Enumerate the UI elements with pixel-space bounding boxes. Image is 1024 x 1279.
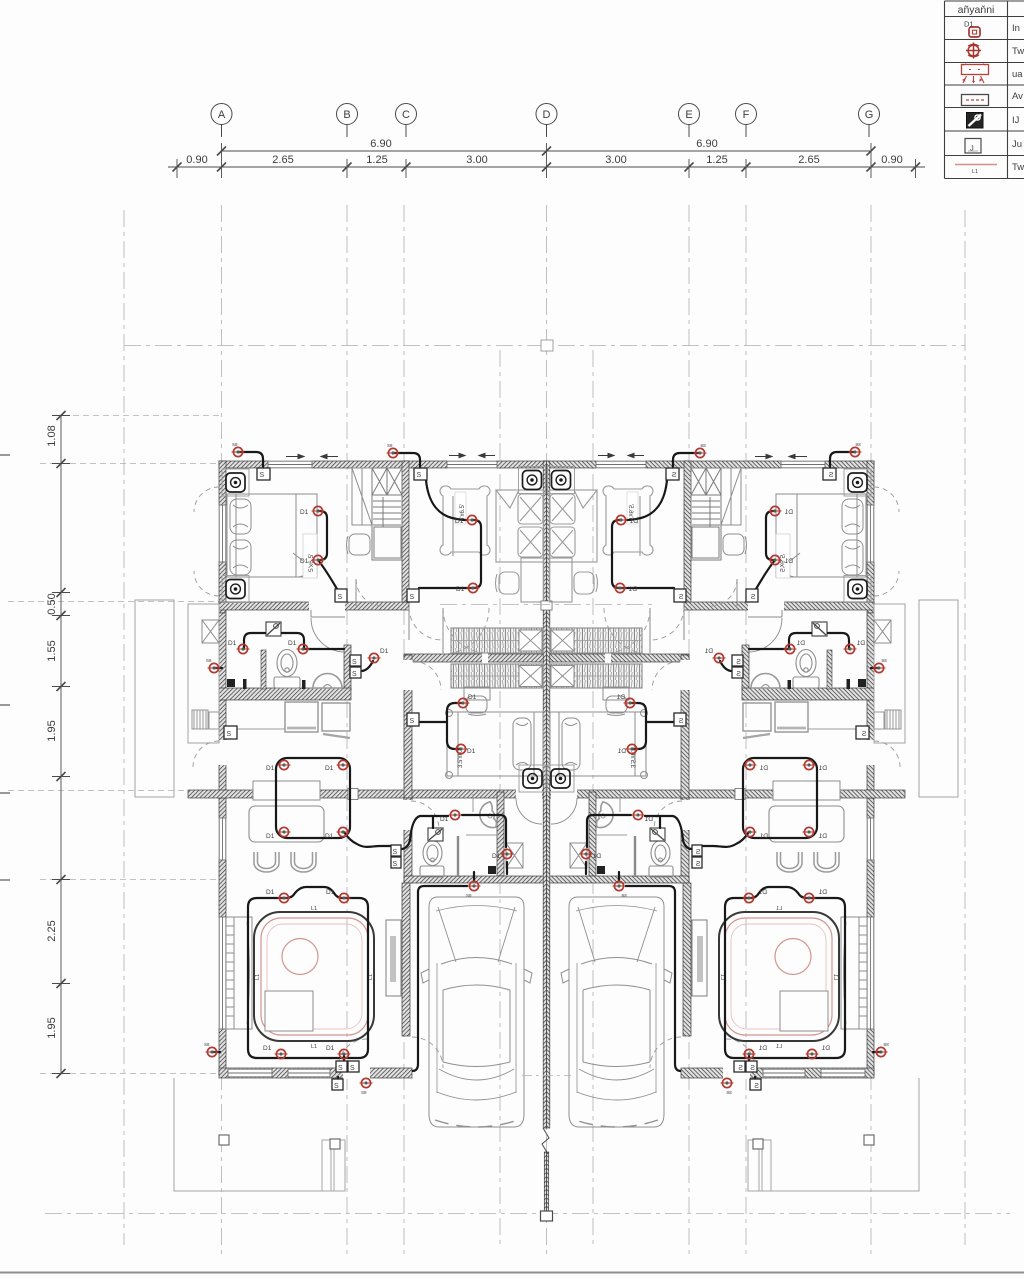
svg-text:A: A <box>218 109 226 121</box>
svg-text:S: S <box>352 659 357 666</box>
svg-text:0.90: 0.90 <box>881 154 902 166</box>
svg-text:L1: L1 <box>255 974 261 980</box>
svg-text:D1: D1 <box>266 833 275 840</box>
svg-text:6.90: 6.90 <box>370 138 391 150</box>
svg-text:S8: S8 <box>204 1042 210 1047</box>
svg-text:2.65: 2.65 <box>272 154 293 166</box>
svg-text:S: S <box>334 1083 339 1090</box>
svg-text:S: S <box>410 718 415 725</box>
svg-text:IJ: IJ <box>1012 115 1020 126</box>
svg-text:D1: D1 <box>228 640 237 647</box>
svg-text:S: S <box>227 731 232 738</box>
svg-text:0.90: 0.90 <box>186 154 207 166</box>
svg-text:añyaňni: añyaňni <box>958 4 995 16</box>
svg-text:L1: L1 <box>972 169 978 175</box>
svg-text:1.25: 1.25 <box>706 154 727 166</box>
svg-text:S: S <box>393 861 398 868</box>
svg-text:S8: S8 <box>361 1090 367 1095</box>
svg-text:1.08: 1.08 <box>46 425 58 446</box>
svg-text:D1: D1 <box>468 694 477 701</box>
svg-text:1.95: 1.95 <box>46 1017 58 1038</box>
svg-text:D1: D1 <box>492 853 501 860</box>
svg-text:In: In <box>1012 23 1020 34</box>
svg-text:S8: S8 <box>206 658 212 663</box>
svg-text:S8: S8 <box>387 443 393 448</box>
svg-text:S: S <box>350 1065 355 1072</box>
svg-text:D1: D1 <box>325 765 334 772</box>
svg-text:G: G <box>865 109 874 121</box>
svg-text:D1: D1 <box>440 816 449 823</box>
svg-text:S: S <box>417 472 422 479</box>
svg-text:0.50: 0.50 <box>46 593 58 614</box>
svg-text:Tw: Tw <box>1012 162 1024 173</box>
svg-text:D: D <box>543 109 551 121</box>
svg-text:3.00: 3.00 <box>605 154 626 166</box>
svg-text:S: S <box>352 671 357 678</box>
svg-text:S: S <box>338 594 343 601</box>
svg-text:F: F <box>743 109 750 121</box>
svg-text:B: B <box>343 109 350 121</box>
svg-text:L1: L1 <box>311 1044 317 1050</box>
svg-text:1.95: 1.95 <box>46 720 58 741</box>
svg-text:1.25: 1.25 <box>366 154 387 166</box>
svg-text:D1: D1 <box>300 558 309 565</box>
svg-text:3.00: 3.00 <box>466 154 487 166</box>
svg-text:D1: D1 <box>467 748 476 755</box>
svg-text:C: C <box>402 109 410 121</box>
svg-text:Ju: Ju <box>1012 139 1022 150</box>
svg-text:D1: D1 <box>266 889 275 896</box>
svg-text:S: S <box>260 472 265 479</box>
svg-text:L1: L1 <box>311 906 317 912</box>
svg-text:D1: D1 <box>288 640 297 647</box>
svg-text:2.25: 2.25 <box>46 920 58 941</box>
svg-text:S: S <box>393 849 398 856</box>
svg-text:D1: D1 <box>456 586 465 593</box>
svg-text:6.90: 6.90 <box>696 138 717 150</box>
svg-text:ua: ua <box>1012 69 1023 80</box>
svg-text:D1: D1 <box>326 889 335 896</box>
svg-text:D1: D1 <box>263 1045 272 1052</box>
svg-text:Tw: Tw <box>1012 46 1024 57</box>
svg-text:D1: D1 <box>325 833 334 840</box>
svg-text:S: S <box>338 1065 343 1072</box>
svg-text:2.65: 2.65 <box>798 154 819 166</box>
svg-text:S8: S8 <box>466 893 472 898</box>
svg-text:S: S <box>410 594 415 601</box>
svg-text:D1: D1 <box>266 765 275 772</box>
svg-text:E: E <box>685 109 692 121</box>
svg-text:D1: D1 <box>300 509 309 516</box>
svg-text:S8: S8 <box>232 442 238 447</box>
svg-text:D1: D1 <box>455 518 464 525</box>
svg-text:1.55: 1.55 <box>46 640 58 661</box>
svg-text:Av: Av <box>1012 91 1023 102</box>
svg-text:D1: D1 <box>326 1045 335 1052</box>
svg-text:D1: D1 <box>380 648 389 655</box>
